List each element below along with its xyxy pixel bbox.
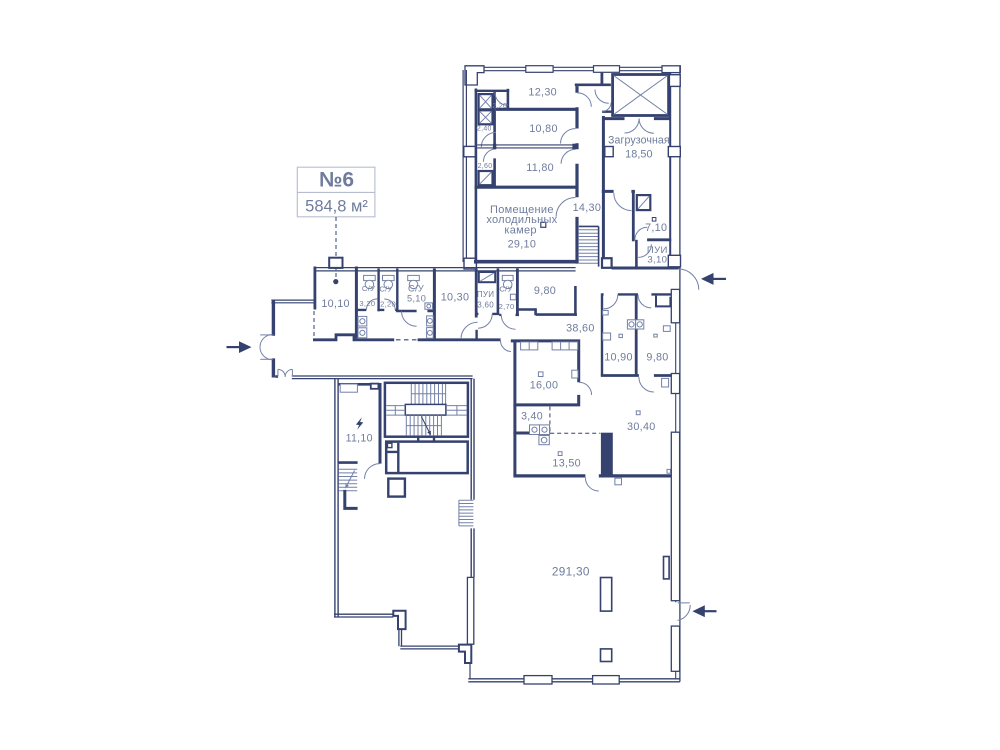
svg-text:18,50: 18,50 xyxy=(625,149,653,161)
svg-text:30,40: 30,40 xyxy=(627,421,656,433)
svg-text:2,20: 2,20 xyxy=(492,103,507,110)
svg-text:С/У: С/У xyxy=(408,284,424,294)
svg-text:12,30: 12,30 xyxy=(528,87,557,99)
svg-text:2,20: 2,20 xyxy=(380,300,396,309)
svg-text:11,80: 11,80 xyxy=(526,162,554,174)
svg-text:2,70: 2,70 xyxy=(499,302,515,311)
svg-text:3,40: 3,40 xyxy=(521,411,543,423)
svg-text:3,20: 3,20 xyxy=(359,299,375,308)
svg-text:С/У: С/У xyxy=(499,285,512,294)
svg-text:2,40: 2,40 xyxy=(477,126,492,133)
svg-text:С/У: С/У xyxy=(379,285,392,294)
svg-text:10,10: 10,10 xyxy=(321,298,350,310)
svg-text:3,60: 3,60 xyxy=(477,301,494,310)
svg-text:ПУИ: ПУИ xyxy=(477,290,494,299)
svg-text:камер: камер xyxy=(504,224,536,236)
svg-text:Загрузочная: Загрузочная xyxy=(608,135,670,147)
svg-text:3,10: 3,10 xyxy=(647,254,667,265)
svg-text:2,60: 2,60 xyxy=(478,163,493,170)
svg-text:С/У: С/У xyxy=(362,284,375,293)
svg-text:11,10: 11,10 xyxy=(346,433,373,445)
svg-text:13,50: 13,50 xyxy=(552,458,581,470)
svg-text:16,00: 16,00 xyxy=(530,380,559,392)
svg-text:9,80: 9,80 xyxy=(646,352,668,364)
svg-text:29,10: 29,10 xyxy=(508,238,537,250)
svg-text:291,30: 291,30 xyxy=(552,564,590,578)
svg-text:584,8 м²: 584,8 м² xyxy=(305,198,368,216)
svg-text:38,60: 38,60 xyxy=(566,322,595,334)
svg-text:10,90: 10,90 xyxy=(604,352,633,364)
svg-text:9,80: 9,80 xyxy=(534,285,556,297)
svg-text:5,10: 5,10 xyxy=(407,293,426,303)
svg-text:10,30: 10,30 xyxy=(441,292,470,304)
svg-text:7,10: 7,10 xyxy=(645,222,667,234)
svg-text:10,80: 10,80 xyxy=(529,123,558,135)
svg-text:14,30: 14,30 xyxy=(573,202,602,214)
svg-text:№6: №6 xyxy=(319,169,354,192)
